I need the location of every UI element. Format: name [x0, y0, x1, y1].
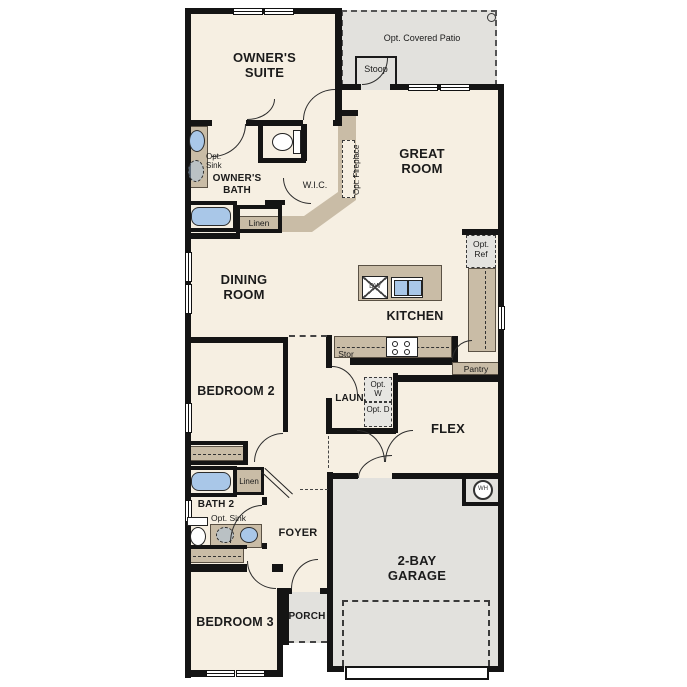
water-heater-label: WH	[475, 486, 491, 493]
wall	[392, 473, 504, 479]
window	[498, 306, 505, 330]
wall	[326, 335, 332, 368]
sink-icon	[189, 130, 205, 152]
wall	[185, 461, 247, 465]
stove-icon	[386, 337, 418, 357]
floor-plan: DW Linen WH OWNER'S SUITE Opt. Covered P…	[0, 0, 687, 687]
wall	[462, 502, 504, 506]
window	[185, 284, 192, 314]
wall	[393, 373, 398, 433]
window	[185, 403, 192, 433]
wall	[327, 472, 333, 672]
room-label-dining-room: DINING ROOM	[213, 272, 275, 303]
window	[233, 8, 263, 15]
room-label-garage: 2-BAY GARAGE	[382, 553, 452, 584]
wall	[185, 564, 247, 572]
wall	[333, 120, 342, 126]
garage-door-outline	[342, 600, 490, 666]
room-label-porch: PORCH	[285, 611, 329, 623]
room-label-wic: W.I.C.	[294, 180, 336, 191]
wall	[488, 666, 504, 672]
bedroom2-closet-shelf	[190, 446, 244, 461]
linen-closet-2: Linen	[234, 467, 264, 495]
garage-apron	[345, 666, 489, 680]
window	[206, 670, 235, 677]
stoop-door-opening	[361, 84, 390, 90]
label-opt-covered-patio: Opt. Covered Patio	[360, 33, 484, 44]
water-heater-icon: WH	[473, 480, 493, 500]
label-opt-ref: Opt. Ref	[468, 239, 494, 259]
bathtub-icon	[191, 207, 231, 226]
wall	[350, 358, 452, 365]
toilet-tank-icon	[293, 130, 301, 154]
wall	[332, 666, 344, 672]
dishwasher-label: DW	[363, 283, 387, 291]
wall	[332, 473, 358, 479]
window	[236, 670, 265, 677]
wall	[498, 84, 504, 476]
patio-column-icon	[487, 13, 496, 22]
room-label-owners-suite: OWNER'S SUITE	[222, 50, 307, 81]
room-label-bedroom-2: BEDROOM 2	[194, 384, 278, 399]
bedroom3-closet-shelf	[190, 548, 244, 563]
wall	[243, 441, 248, 465]
kitchen-east-counter	[468, 268, 496, 352]
opt-sink-icon	[188, 160, 204, 182]
room-label-foyer: FOYER	[272, 527, 324, 540]
label-opt-sink-owners: Opt. Sink	[206, 152, 232, 171]
label-stoop: Stoop	[355, 64, 397, 75]
bathtub-icon	[191, 472, 231, 491]
window	[185, 252, 192, 282]
wall	[246, 120, 303, 126]
wall	[320, 588, 333, 594]
wall	[262, 497, 267, 505]
room-label-great-room: GREAT ROOM	[391, 146, 453, 177]
window	[408, 84, 438, 91]
kitchen-sink-icon	[391, 277, 423, 298]
room-label-bath-2: BATH 2	[192, 499, 240, 511]
window	[264, 8, 294, 15]
room-label-kitchen: KITCHEN	[383, 309, 447, 324]
room-label-owners-bath: OWNER'S BATH	[206, 173, 268, 197]
passage-break-line	[328, 436, 329, 468]
wall	[185, 670, 206, 677]
wall	[340, 110, 358, 116]
toilet-bowl-icon	[272, 133, 293, 151]
wall	[301, 124, 307, 161]
wall	[262, 543, 267, 549]
label-opt-dryer: Opt. D	[366, 405, 390, 414]
wall	[185, 545, 247, 549]
label-opt-washer: Opt. W	[366, 380, 390, 399]
label-stor: Stor	[334, 349, 358, 359]
label-opt-fireplace: Opt. Fireplace	[352, 139, 361, 201]
room-label-flex: FLEX	[420, 421, 476, 436]
wall	[185, 337, 288, 343]
wall	[185, 8, 191, 678]
label-pantry: Pantry	[452, 364, 500, 374]
linen-label: Linen	[237, 477, 261, 486]
dishwasher-icon: DW	[362, 276, 388, 299]
label-linen-owners: Linen	[240, 218, 278, 228]
room-label-bedroom-3: BEDROOM 3	[193, 615, 277, 630]
wall	[185, 233, 240, 239]
wall	[335, 8, 342, 126]
wall	[258, 158, 306, 163]
window	[440, 84, 470, 91]
wall	[283, 337, 288, 432]
wall	[185, 120, 212, 126]
passage-break-line	[300, 489, 328, 490]
toilet-bowl-icon	[190, 527, 206, 546]
label-opt-sink-bath2: Opt. Sink	[201, 513, 256, 523]
room-label-laundry: LAUN.	[332, 393, 370, 405]
wall	[396, 375, 502, 382]
passage-break-line	[289, 335, 327, 337]
wall	[185, 441, 247, 445]
